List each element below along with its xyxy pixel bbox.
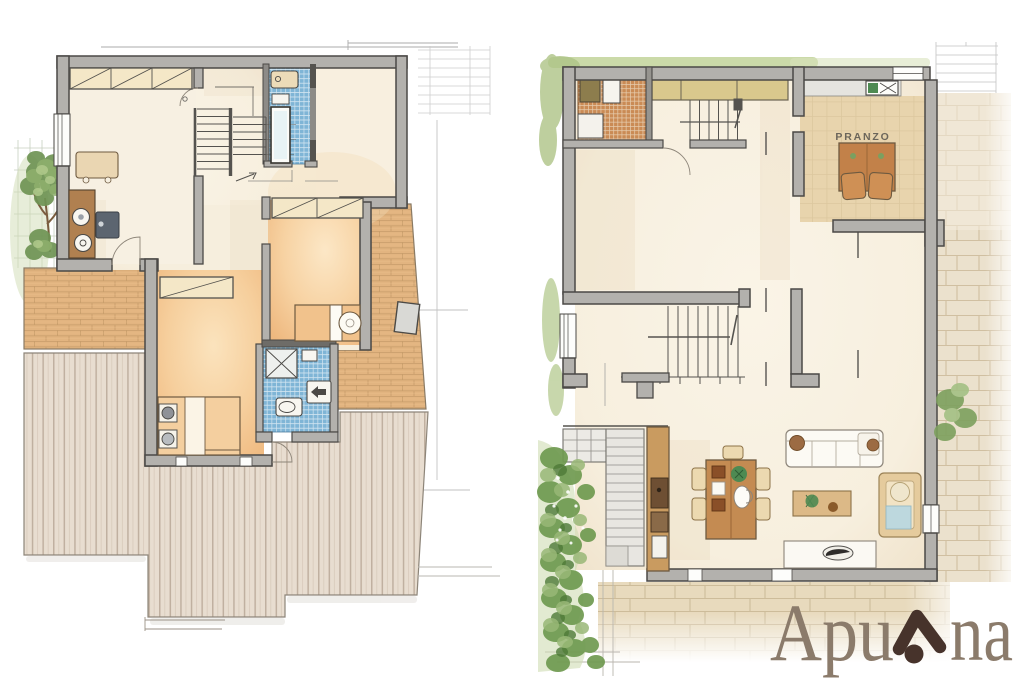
svg-text:PRANZO: PRANZO bbox=[835, 131, 890, 143]
svg-text:na: na bbox=[950, 587, 1013, 678]
svg-text:Apu: Apu bbox=[770, 587, 894, 678]
